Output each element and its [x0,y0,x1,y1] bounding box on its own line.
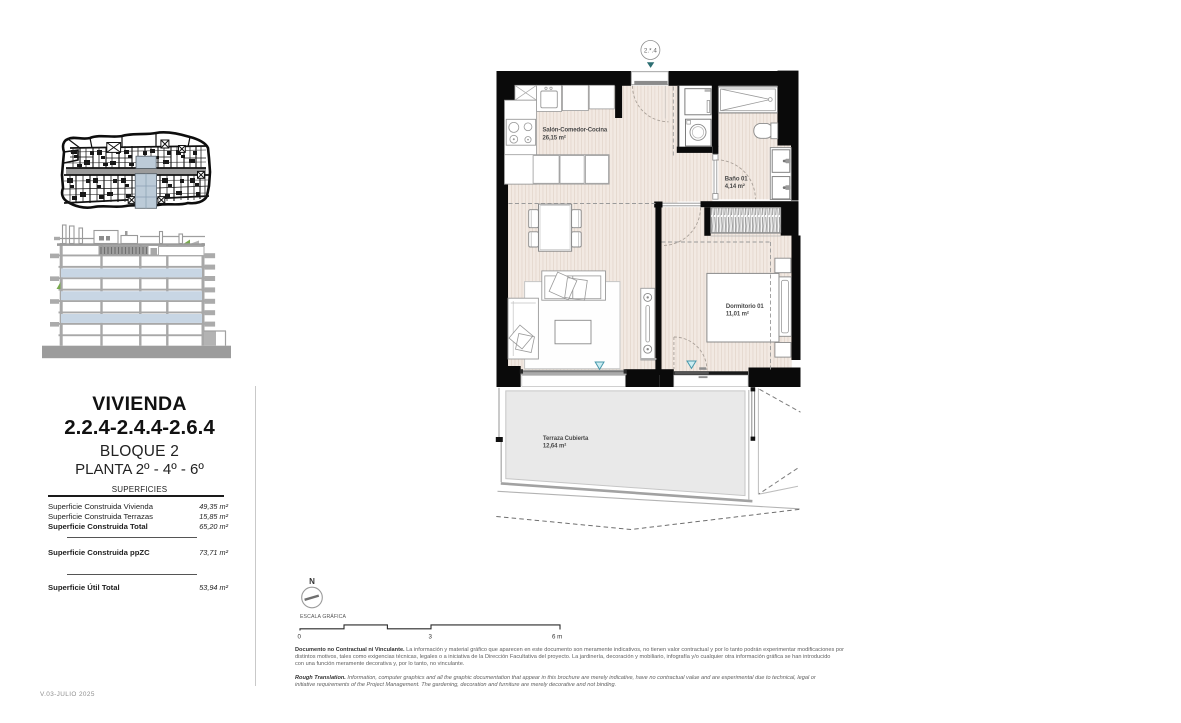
svg-text:12,64 m²: 12,64 m² [543,443,566,450]
svg-text:2.*.4: 2.*.4 [644,47,657,54]
svg-text:Salón-Comedor-Cocina: Salón-Comedor-Cocina [543,128,608,134]
svg-text:Dormitorio 01: Dormitorio 01 [726,304,764,310]
svg-text:26,15 m²: 26,15 m² [543,135,566,142]
svg-text:0: 0 [298,634,302,641]
svg-text:4,14 m²: 4,14 m² [725,183,745,190]
svg-text:Baño 01: Baño 01 [725,176,748,182]
svg-text:Terraza Cubierta: Terraza Cubierta [543,436,589,442]
svg-text:11,01 m²: 11,01 m² [726,311,749,318]
svg-text:ESCALA GRÁFICA: ESCALA GRÁFICA [300,613,347,620]
svg-text:6 m: 6 m [552,634,562,641]
svg-text:3: 3 [429,634,433,641]
svg-text:N: N [309,577,315,586]
